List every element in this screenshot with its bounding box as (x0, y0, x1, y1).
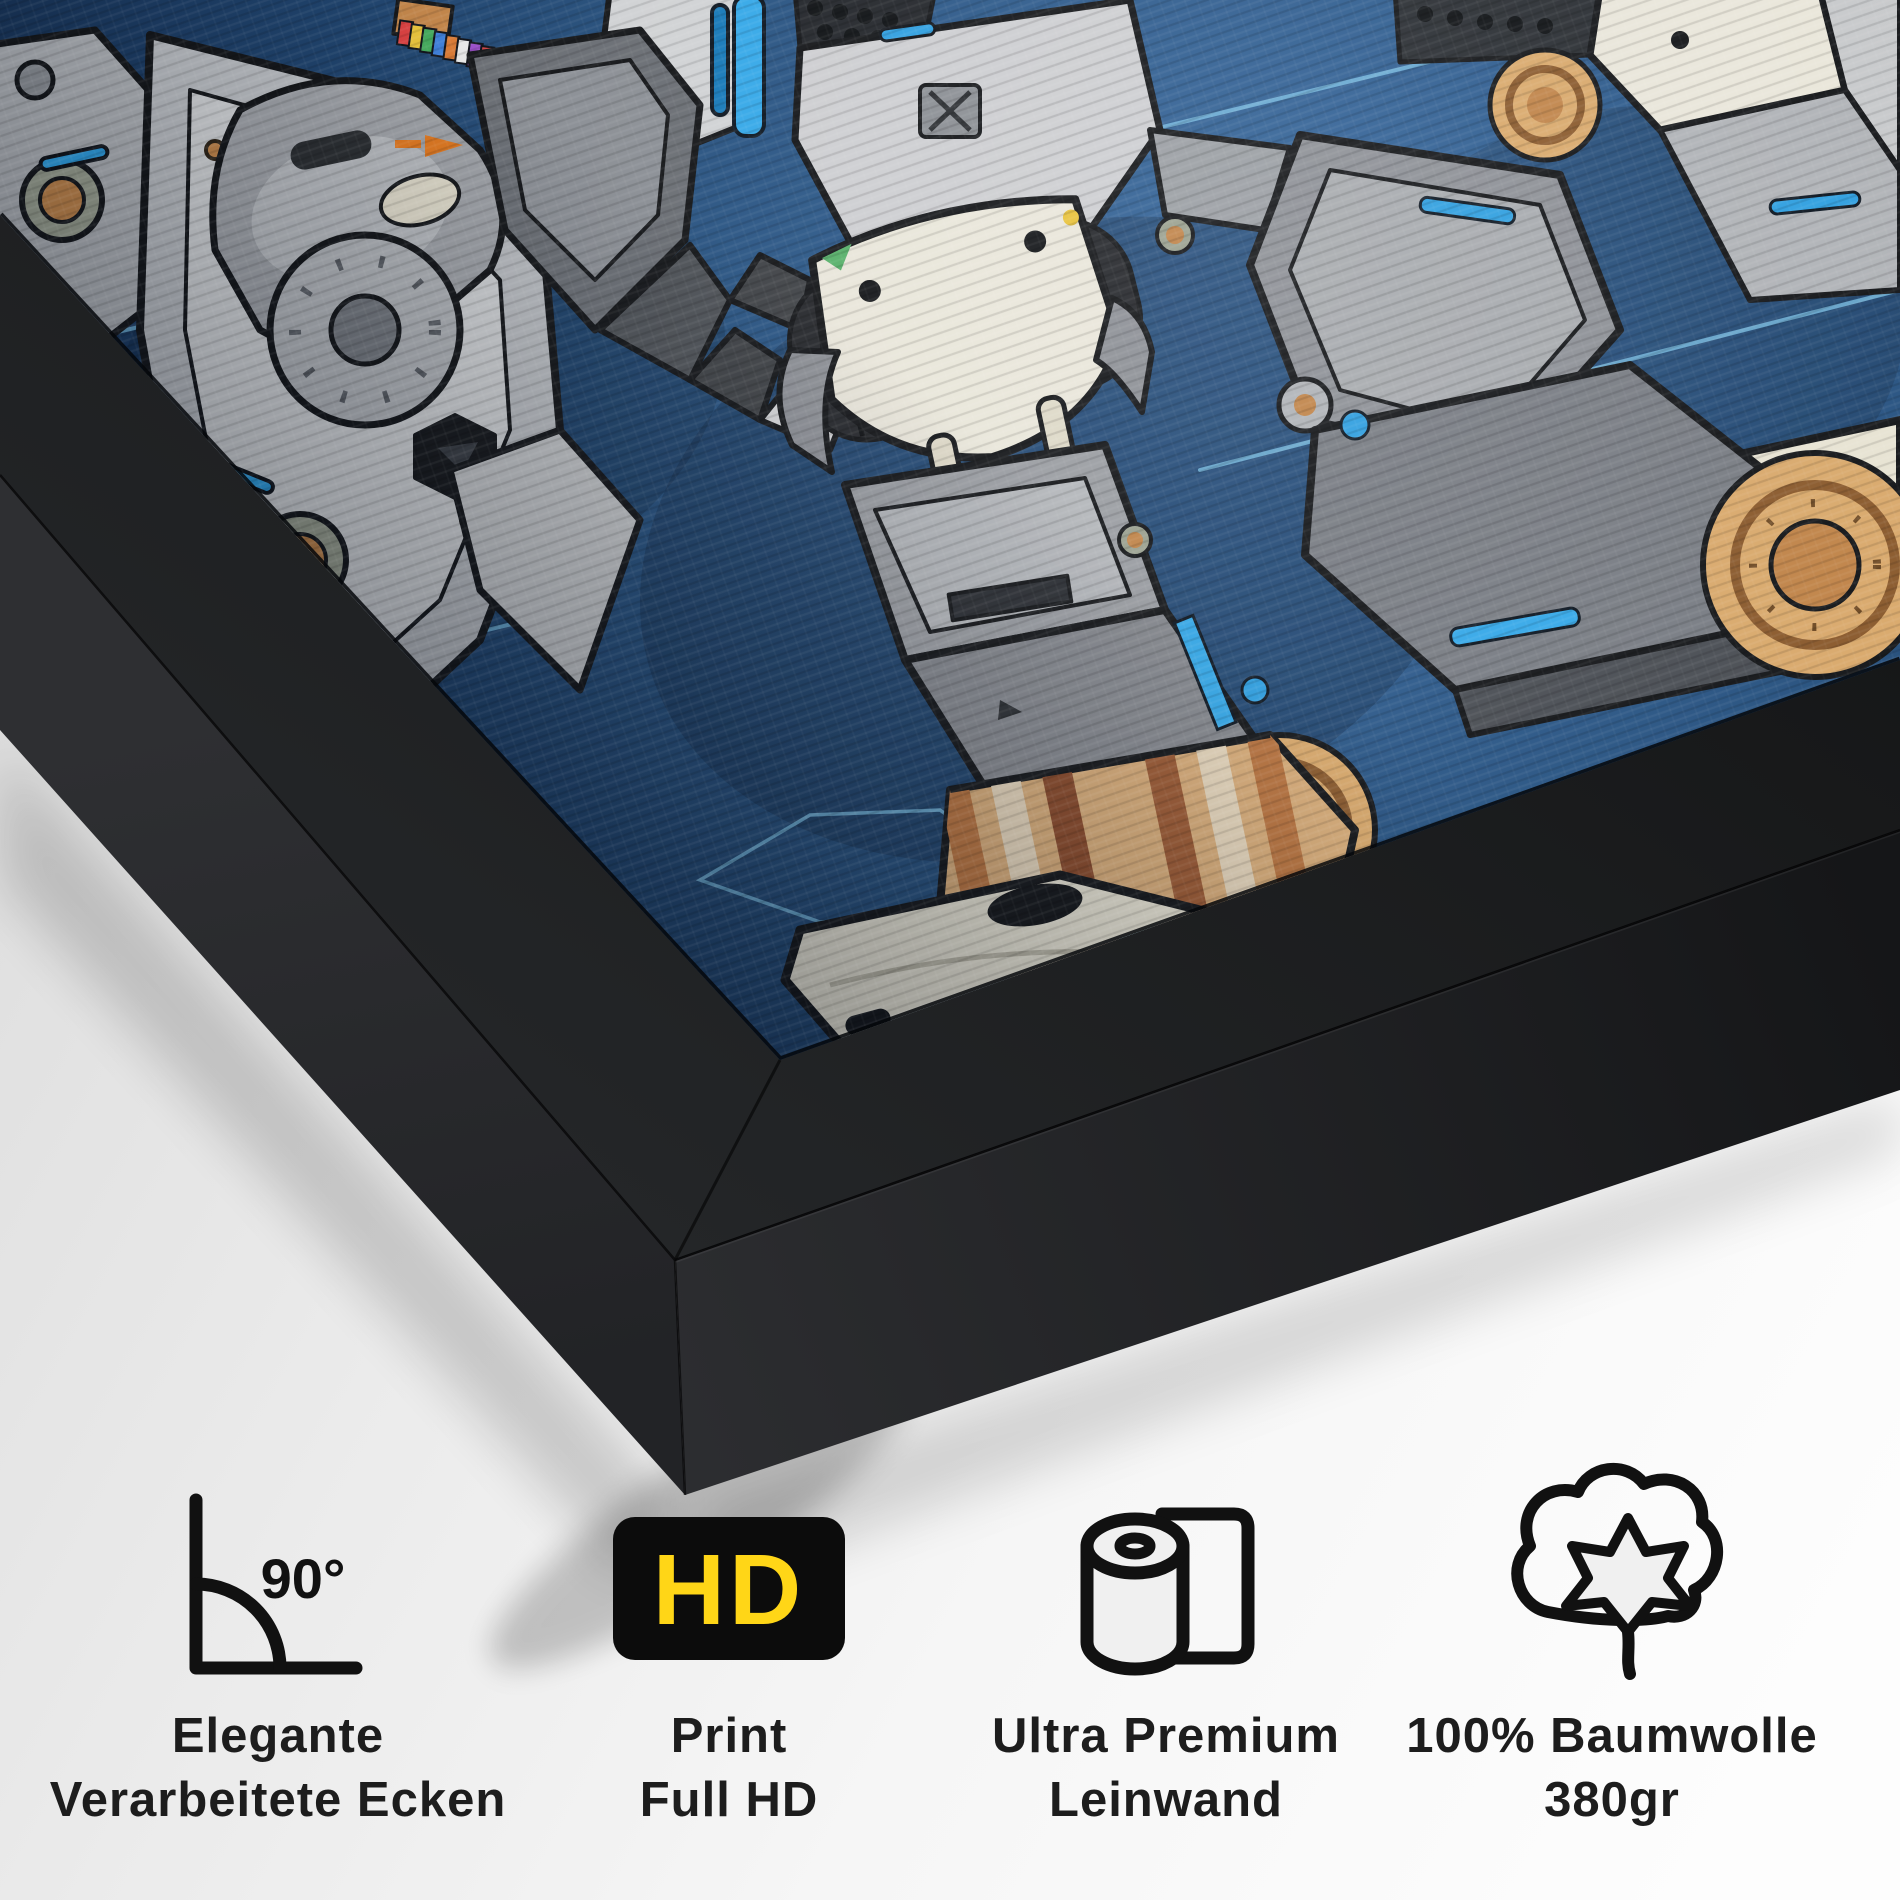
feature-label: Ultra Premium (992, 1709, 1340, 1763)
feature-label: Verarbeitete Ecken (50, 1773, 507, 1827)
product-mockup-scene: 90° Elegante Verarbeitete Ecken HD Print… (0, 0, 1900, 1900)
angle-degree-label: 90° (261, 1547, 346, 1610)
svg-text:HD: HD (653, 1534, 805, 1646)
feature-label: Leinwand (1049, 1773, 1283, 1827)
hd-badge-icon: HD (613, 1517, 845, 1660)
feature-label: 100% Baumwolle (1406, 1709, 1818, 1763)
feature-label: Elegante (172, 1709, 384, 1763)
feature-label: Print (671, 1709, 788, 1763)
feature-label: 380gr (1544, 1773, 1680, 1827)
feature-label: Full HD (640, 1773, 818, 1827)
